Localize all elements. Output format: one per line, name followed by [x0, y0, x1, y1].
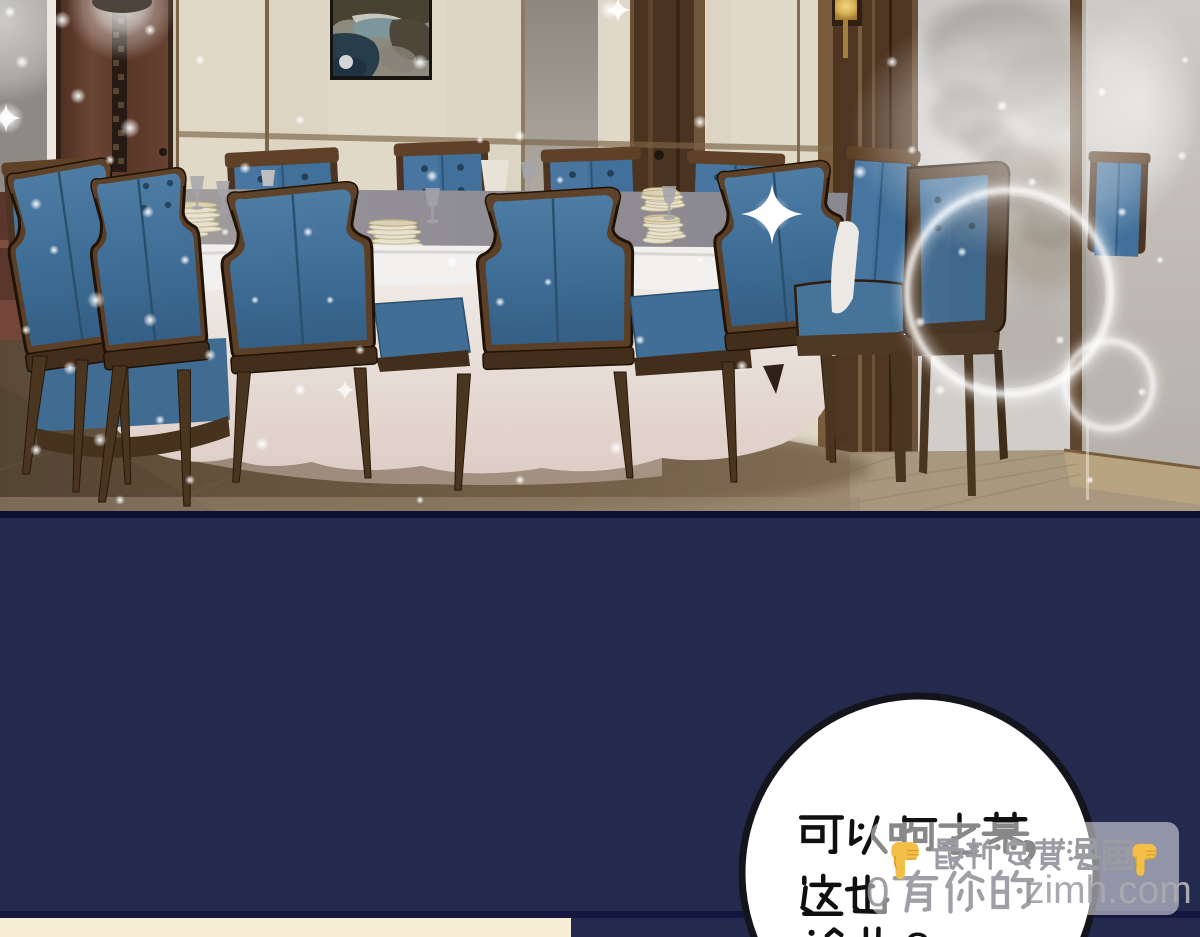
svg-text:zimh.com: zimh.com — [1025, 869, 1192, 912]
svg-text:?: ? — [905, 924, 929, 937]
svg-text:0: 0 — [866, 868, 889, 915]
